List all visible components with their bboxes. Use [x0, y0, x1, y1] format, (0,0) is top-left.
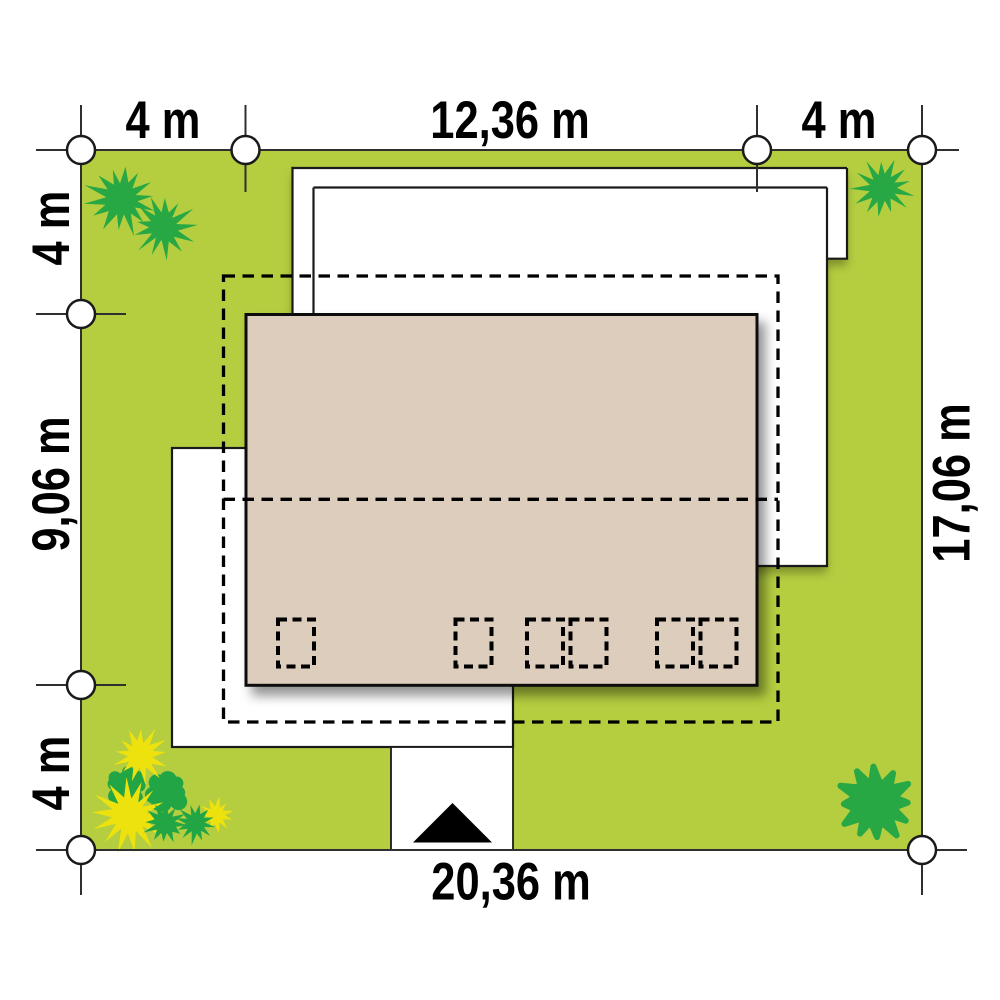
svg-text:12,36 m: 12,36 m: [430, 91, 589, 150]
svg-text:20,36 m: 20,36 m: [431, 852, 590, 911]
svg-text:4 m: 4 m: [22, 736, 81, 811]
svg-text:4 m: 4 m: [126, 91, 201, 150]
svg-text:4 m: 4 m: [802, 91, 877, 150]
svg-text:9,06 m: 9,06 m: [22, 416, 81, 551]
svg-text:4 m: 4 m: [22, 191, 81, 266]
svg-text:17,06 m: 17,06 m: [922, 403, 981, 562]
